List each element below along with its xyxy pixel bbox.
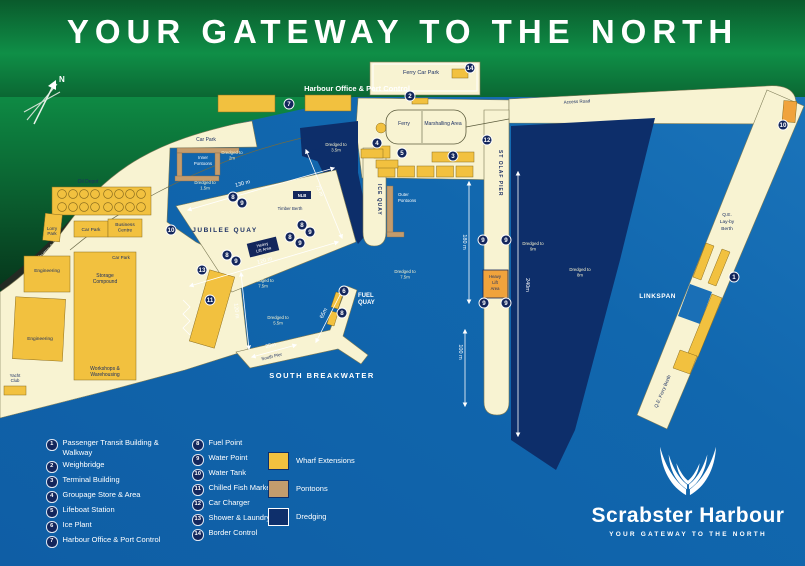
colour-key: Wharf ExtensionsPontoonsDredging xyxy=(268,452,360,526)
marker-9: 9 xyxy=(231,256,241,266)
legend-item-label: Water Point xyxy=(209,453,248,463)
legend-item-number: 12 xyxy=(192,499,204,511)
ferry-label: Ferry xyxy=(398,121,410,127)
legend-item-14: 14Border Control xyxy=(192,528,310,541)
yacht-club-label: YachtClub xyxy=(10,373,21,383)
marker-1: 1 xyxy=(729,272,739,282)
svg-text:14: 14 xyxy=(467,65,474,72)
marker-2: 2 xyxy=(405,91,415,101)
inner-pontoon-3 xyxy=(215,153,220,175)
marker-13: 13 xyxy=(197,265,207,275)
workshops-label: Workshops &Warehousing xyxy=(90,366,120,378)
colour-key-label: Dredging xyxy=(296,513,360,522)
colour-key-row: Pontoons xyxy=(268,480,360,498)
car-park-basin-label: Car Park xyxy=(196,137,216,143)
colour-key-row: Wharf Extensions xyxy=(268,452,360,470)
marker-9: 9 xyxy=(295,238,305,248)
oil-depot-building xyxy=(52,187,151,215)
svg-text:8: 8 xyxy=(225,252,229,259)
outer-pontoon-2 xyxy=(387,232,404,237)
marshalling-area-label: Marshalling Area xyxy=(424,121,461,127)
fuel-quay-label: FUELQUAY xyxy=(358,293,375,306)
marker-8: 8 xyxy=(337,308,347,318)
legend-item-label: Terminal Building xyxy=(63,475,120,485)
measure-180m: 180 m xyxy=(461,234,467,250)
svg-text:7: 7 xyxy=(287,101,291,108)
legend-item-number: 1 xyxy=(46,439,58,451)
legend-item-label: Fuel Point xyxy=(209,438,243,448)
colour-key-label: Pontoons xyxy=(296,485,360,494)
ferry-car-park-label: Ferry Car Park xyxy=(403,70,439,76)
car-park-storage-label: Car Park xyxy=(112,255,131,260)
svg-text:4: 4 xyxy=(375,140,379,147)
marker-6: 6 xyxy=(339,286,349,296)
svg-text:9: 9 xyxy=(504,237,508,244)
colour-swatch xyxy=(268,480,289,498)
marker-3: 3 xyxy=(448,151,458,161)
legend-item-3: 3Terminal Building xyxy=(46,475,176,488)
wing-icon xyxy=(653,441,723,497)
marker-4: 4 xyxy=(372,138,382,148)
harbour-office-label: Harbour Office & Port Control xyxy=(304,84,410,93)
legend-item-label: Weighbridge xyxy=(63,460,105,470)
marker-12: 12 xyxy=(482,135,492,145)
svg-text:8: 8 xyxy=(231,194,235,201)
svg-text:5: 5 xyxy=(400,150,404,157)
legend-item-number: 9 xyxy=(192,454,204,466)
page-title: YOUR GATEWAY TO THE NORTH xyxy=(0,13,805,51)
marker-10: 10 xyxy=(166,225,176,235)
legend-item-number: 8 xyxy=(192,439,204,451)
legend-item-label: Passenger Transit Building & Walkway xyxy=(63,438,171,458)
st-olaf-pier xyxy=(484,110,509,415)
legend-item-4: 4Groupage Store & Area xyxy=(46,490,176,503)
marker-7: 7 xyxy=(284,99,294,109)
legend-item-label: Ice Plant xyxy=(63,520,92,530)
wharf-ext-4 xyxy=(437,166,454,177)
car-park-mid-label: Car Park xyxy=(82,227,102,233)
lifeboat-station-building xyxy=(376,160,398,168)
brand-tagline: YOUR GATEWAY TO THE NORTH xyxy=(588,531,788,538)
storage-workshops-building xyxy=(74,252,136,380)
legend-item-number: 11 xyxy=(192,484,204,496)
wharf-ext-3 xyxy=(417,166,434,177)
st-olaf-pier-label: ST OLAF PIER xyxy=(497,150,503,196)
legend-item-2: 2Weighbridge xyxy=(46,460,176,473)
svg-text:9: 9 xyxy=(298,240,302,247)
svg-text:1: 1 xyxy=(732,274,736,281)
svg-text:3: 3 xyxy=(451,153,455,160)
legend-item-label: Groupage Store & Area xyxy=(63,490,141,500)
svg-text:6: 6 xyxy=(342,288,346,295)
marker-11: 11 xyxy=(205,295,215,305)
svg-text:9: 9 xyxy=(481,237,485,244)
oil-depot-label: Oil Depot xyxy=(78,179,99,185)
svg-text:10: 10 xyxy=(780,122,787,129)
wharf-ext-5 xyxy=(456,166,473,177)
legend-item-label: Shower & Laundry xyxy=(209,513,271,523)
water-tank-block xyxy=(782,101,797,123)
marker-9: 9 xyxy=(237,198,247,208)
south-breakwater-label: SOUTH BREAKWATER xyxy=(269,371,375,380)
marker-8: 8 xyxy=(222,250,232,260)
roundabout xyxy=(376,123,386,133)
colour-key-row: Dredging xyxy=(268,508,360,526)
legend-item-number: 5 xyxy=(46,506,58,518)
engineering-upper-label: Engineering xyxy=(34,268,60,274)
legend-item-label: Lifeboat Station xyxy=(63,505,115,515)
legend-item-8: 8Fuel Point xyxy=(192,438,310,451)
colour-swatch xyxy=(268,452,289,470)
marker-9: 9 xyxy=(501,235,511,245)
yacht-club-building xyxy=(4,386,26,395)
legend-item-number: 14 xyxy=(192,529,204,541)
legend-item-number: 4 xyxy=(46,491,58,503)
legend-item-number: 13 xyxy=(192,514,204,526)
legend-item-label: Car Charger xyxy=(209,498,250,508)
svg-text:9: 9 xyxy=(308,229,312,236)
lorry-park-label: LorryPark xyxy=(47,226,58,236)
svg-text:9: 9 xyxy=(234,258,238,265)
ice-quay-label: ICE QUAY xyxy=(376,184,382,216)
marker-10: 10 xyxy=(778,120,788,130)
svg-text:9: 9 xyxy=(482,300,486,307)
legend-item-1: 1Passenger Transit Building & Walkway xyxy=(46,438,176,458)
marker-9: 9 xyxy=(479,298,489,308)
legend-item-number: 6 xyxy=(46,521,58,533)
storage-compound-label: StorageCompound xyxy=(93,273,118,285)
measure-240m: 240m xyxy=(524,278,530,292)
marker-9: 9 xyxy=(478,235,488,245)
jubilee-quay-label: JUBILEE QUAY xyxy=(192,227,257,234)
colour-swatch xyxy=(268,508,289,526)
svg-text:10: 10 xyxy=(168,227,175,234)
wharf-ext-2 xyxy=(398,166,415,177)
port-control-building xyxy=(305,95,351,111)
compass-north-label: N xyxy=(59,75,65,84)
svg-text:12: 12 xyxy=(484,137,491,144)
marker-14: 14 xyxy=(465,63,475,73)
brand-name: Scrabster Harbour xyxy=(588,504,788,528)
engineering-building-2 xyxy=(12,297,65,362)
legend-item-5: 5Lifeboat Station xyxy=(46,505,176,518)
svg-text:9: 9 xyxy=(240,200,244,207)
colour-key-label: Wharf Extensions xyxy=(296,457,360,466)
legend-item-label: Harbour Office & Port Control xyxy=(63,535,161,545)
marker-9: 9 xyxy=(501,298,511,308)
scrabster-harbour-logo: Scrabster Harbour YOUR GATEWAY TO THE NO… xyxy=(588,441,788,538)
legend-item-label: Border Control xyxy=(209,528,258,538)
engineering-building-1 xyxy=(24,256,70,292)
svg-text:13: 13 xyxy=(199,267,206,274)
marker-5: 5 xyxy=(397,148,407,158)
svg-text:8: 8 xyxy=(288,234,292,241)
legend-item-label: Chilled Fish Market xyxy=(209,483,273,493)
timber-berth-label: Timber Berth xyxy=(278,206,303,211)
legend-item-6: 6Ice Plant xyxy=(46,520,176,533)
svg-text:9: 9 xyxy=(504,300,508,307)
marker-8: 8 xyxy=(228,192,238,202)
legend-item-number: 3 xyxy=(46,476,58,488)
engineering-lower-label: Engineering xyxy=(27,336,53,342)
marker-9: 9 xyxy=(305,227,315,237)
svg-text:8: 8 xyxy=(340,310,344,317)
legend-item-number: 7 xyxy=(46,536,58,548)
legend-item-number: 2 xyxy=(46,461,58,473)
legend-item-number: 10 xyxy=(192,469,204,481)
svg-text:2: 2 xyxy=(408,93,412,100)
marker-8: 8 xyxy=(285,232,295,242)
linkspan-label: LINKSPAN xyxy=(639,293,676,300)
marker-8: 8 xyxy=(297,220,307,230)
legend-item-label: Water Tank xyxy=(209,468,247,478)
harbour-office-building xyxy=(218,95,275,112)
svg-text:11: 11 xyxy=(207,297,214,304)
outer-pontoon-1 xyxy=(387,186,393,234)
harbour-map-page: To Thurso 1 Mile xyxy=(0,0,805,566)
svg-text:8: 8 xyxy=(300,222,304,229)
legend-item-7: 7Harbour Office & Port Control xyxy=(46,535,176,548)
ice-plant-building xyxy=(361,149,383,158)
measure-100m: 100 m xyxy=(457,344,463,360)
nlb-berth-label: NLB xyxy=(298,193,307,198)
legend-column-1: 1Passenger Transit Building & Walkway2We… xyxy=(46,438,176,548)
